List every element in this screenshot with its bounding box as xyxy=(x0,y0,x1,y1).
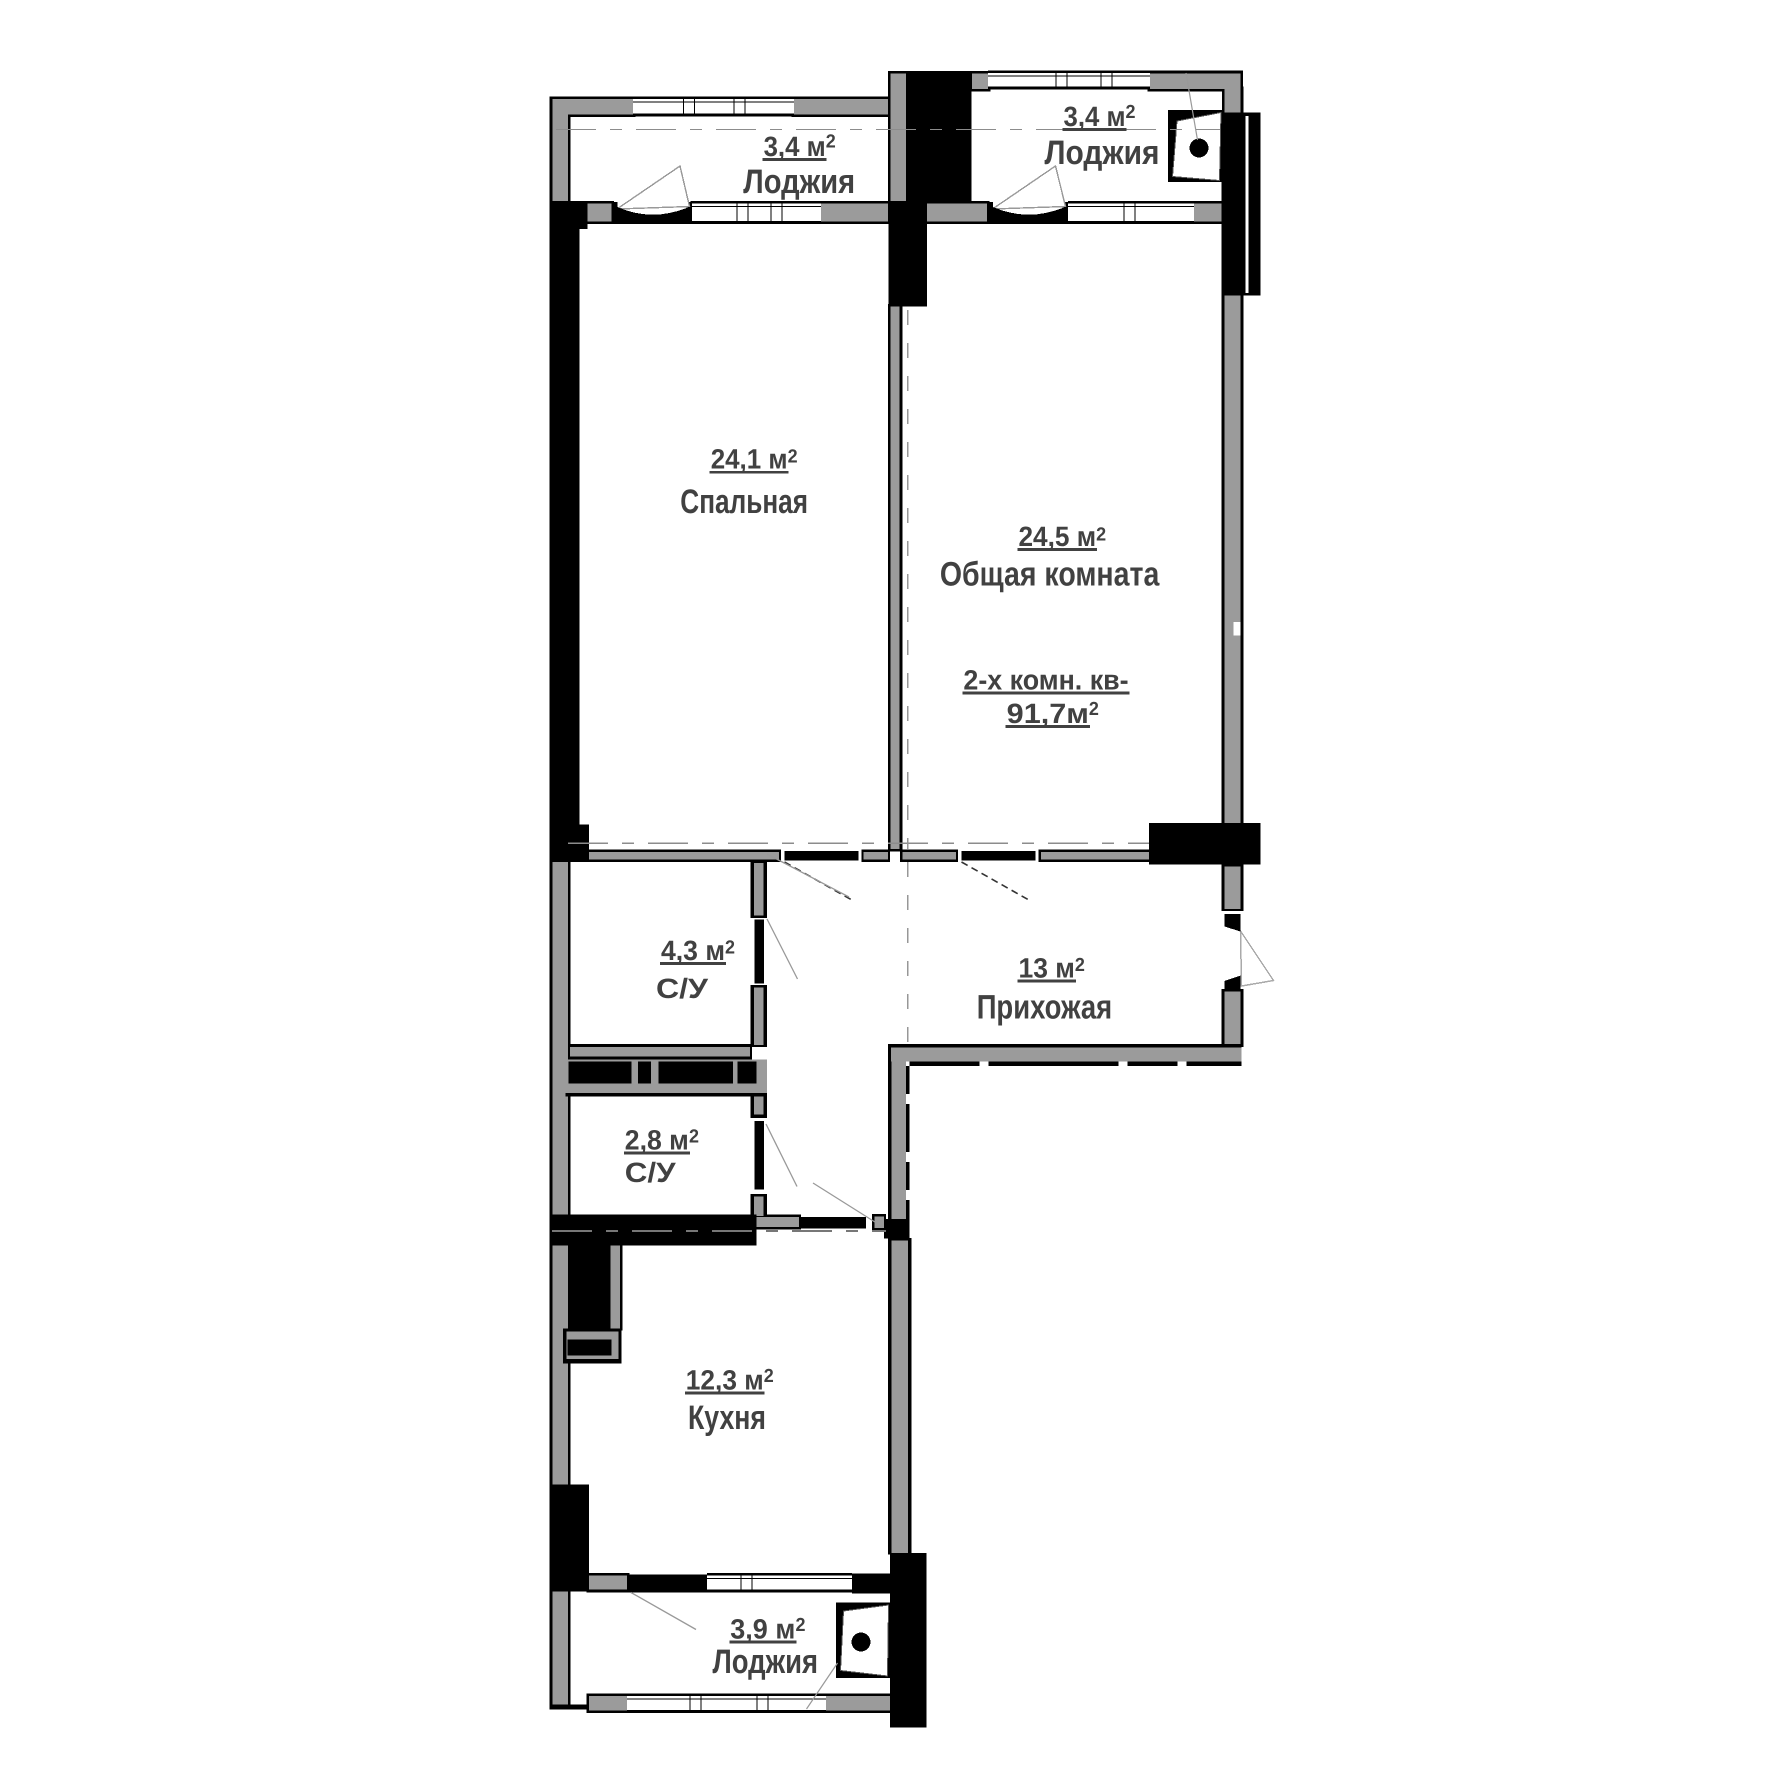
svg-text:2: 2 xyxy=(725,938,735,959)
svg-text:2: 2 xyxy=(1126,102,1136,123)
svg-text:Лоджия: Лоджия xyxy=(713,1643,819,1681)
svg-text:2: 2 xyxy=(796,1615,806,1636)
svg-text:Лоджия: Лоджия xyxy=(1045,134,1160,172)
svg-text:2: 2 xyxy=(1096,525,1106,546)
svg-text:С/У: С/У xyxy=(656,973,709,1004)
svg-text:Лоджия: Лоджия xyxy=(743,163,855,201)
svg-text:2: 2 xyxy=(826,132,836,153)
svg-text:12,3 м: 12,3 м xyxy=(686,1365,764,1396)
svg-text:3,9 м: 3,9 м xyxy=(730,1614,795,1645)
svg-text:91,7м: 91,7м xyxy=(1007,698,1089,729)
svg-text:Спальная: Спальная xyxy=(680,483,808,521)
svg-text:24,5 м: 24,5 м xyxy=(1019,521,1097,552)
svg-text:4,3 м: 4,3 м xyxy=(661,935,725,966)
svg-text:24,1 м: 24,1 м xyxy=(711,444,788,475)
svg-text:3,4 м: 3,4 м xyxy=(1064,101,1126,132)
svg-text:2: 2 xyxy=(1089,699,1099,720)
svg-text:13 м: 13 м xyxy=(1019,953,1075,984)
svg-text:3,4 м: 3,4 м xyxy=(764,131,826,162)
svg-text:Прихожая: Прихожая xyxy=(977,989,1112,1027)
svg-text:2: 2 xyxy=(788,446,798,467)
svg-text:2-х комн. кв-: 2-х комн. кв- xyxy=(963,665,1128,696)
svg-text:2: 2 xyxy=(1075,955,1085,976)
svg-text:Общая комната: Общая комната xyxy=(940,556,1160,594)
svg-text:Кухня: Кухня xyxy=(688,1399,766,1437)
svg-text:2,8 м: 2,8 м xyxy=(625,1125,689,1156)
svg-text:2: 2 xyxy=(689,1127,699,1148)
svg-text:С/У: С/У xyxy=(625,1157,676,1188)
svg-text:2: 2 xyxy=(764,1366,774,1387)
